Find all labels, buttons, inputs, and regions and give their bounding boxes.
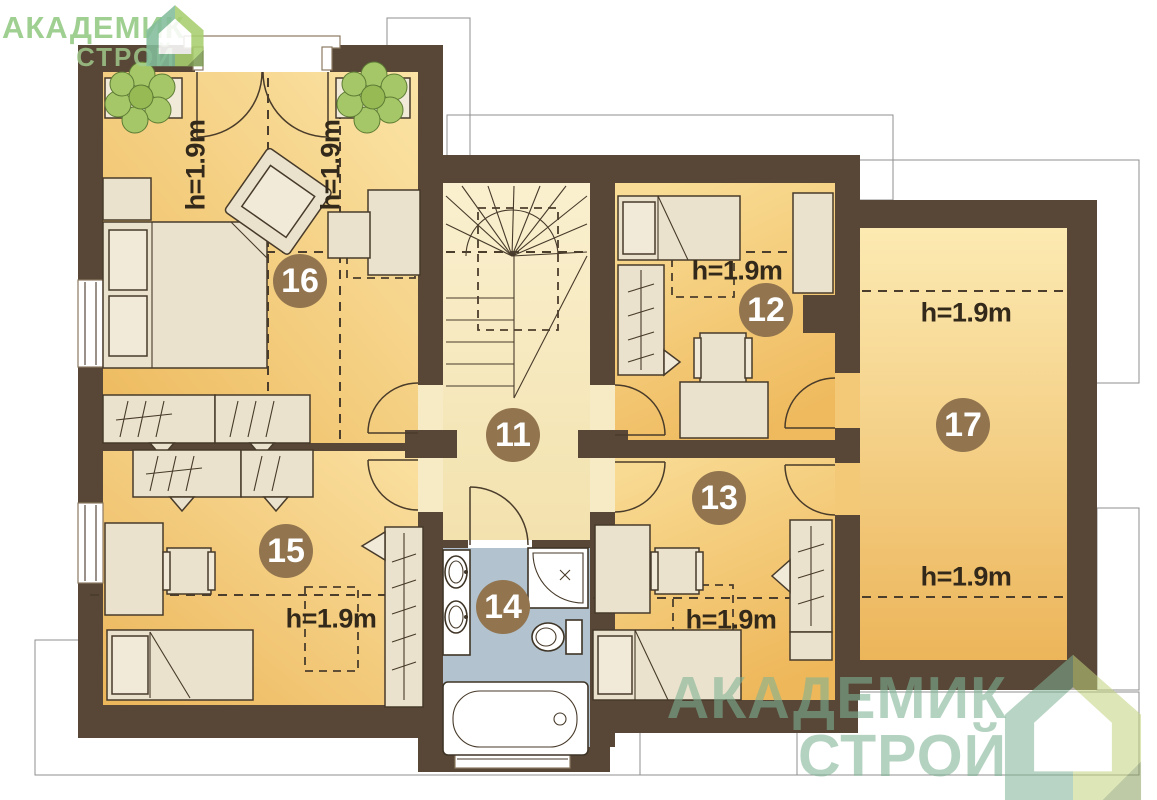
window-left-room15 — [78, 503, 103, 583]
height-label-room17-b: h=1.9m — [921, 562, 1012, 593]
height-label-room15: h=1.9m — [286, 604, 377, 635]
toilet — [532, 620, 582, 654]
chair — [651, 548, 703, 594]
height-label-room13: h=1.9m — [686, 605, 777, 636]
single-bed — [107, 630, 253, 700]
brand-house-icon-bottom — [992, 645, 1154, 800]
desk — [105, 523, 163, 615]
window-left-room16 — [78, 280, 103, 367]
chimney-block — [803, 295, 837, 333]
room-11-floor — [443, 183, 590, 540]
cabinet — [793, 193, 833, 293]
sink-counter — [443, 550, 470, 655]
room-badge-12: 12 — [739, 283, 793, 337]
brand-lockup-bottom: АКАДЕМИК СТРОЙ — [667, 670, 1007, 786]
brand-subtext-bottom: СТРОЙ — [667, 728, 1007, 786]
brand-house-icon-top — [141, 1, 209, 69]
chair — [163, 548, 215, 594]
room-badge-13: 13 — [692, 471, 746, 525]
bathtub — [443, 682, 588, 755]
chair — [694, 333, 752, 383]
room-badge-14: 14 — [476, 580, 530, 634]
height-label-room17-a: h=1.9m — [921, 298, 1012, 329]
room-badge-15: 15 — [259, 524, 313, 578]
double-bed — [103, 222, 267, 368]
height-label-room12: h=1.9m — [692, 256, 783, 287]
height-label-room16-b: h=1.9m — [316, 120, 347, 211]
shower — [528, 548, 588, 608]
chair — [328, 212, 370, 258]
single-bed — [618, 196, 740, 260]
room-badge-16: 16 — [273, 254, 327, 308]
room-badge-11: 11 — [486, 408, 540, 462]
room-badge-17: 17 — [936, 398, 990, 452]
brand-text-bottom: АКАДЕМИК — [667, 670, 1007, 728]
desk — [368, 190, 420, 275]
desk — [595, 525, 650, 613]
nightstand — [103, 178, 151, 220]
floor-plan-canvas: 11 12 13 14 15 16 17 h=1.9m h=1.9m h=1.9… — [0, 0, 1157, 800]
height-label-room16-a: h=1.9m — [181, 120, 212, 211]
desk — [680, 382, 768, 438]
